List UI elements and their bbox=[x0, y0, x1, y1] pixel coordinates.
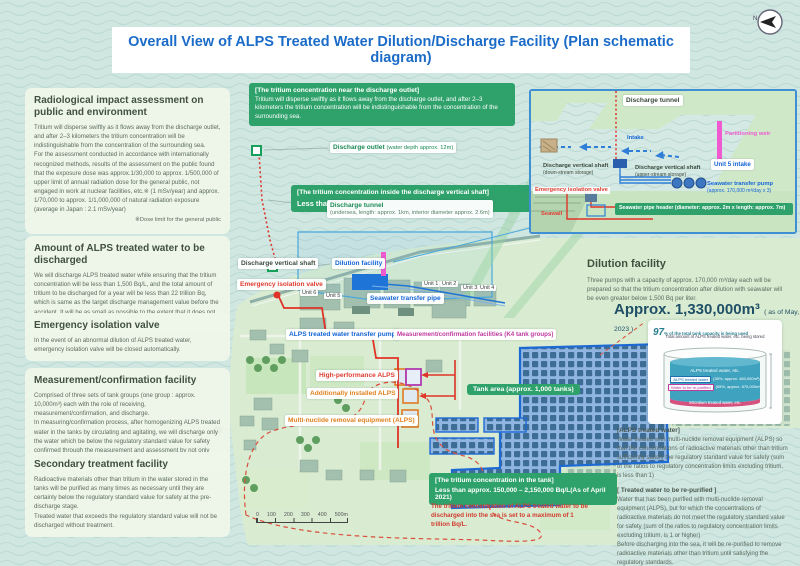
inset-label-discharge-tunnel: Discharge tunnel bbox=[623, 95, 683, 106]
tank-storage-graphic: 97% of the total tank capacity is being … bbox=[648, 320, 782, 424]
scale-tick: 400 bbox=[318, 512, 327, 518]
label-unit-3: Unit 3 bbox=[461, 285, 479, 291]
north-compass-icon: N bbox=[746, 5, 786, 39]
inset-label-unit5-intake: Unit 5 intake bbox=[711, 159, 754, 170]
label-unit-4: Unit 4 bbox=[478, 285, 496, 291]
inset-label-emergency-isolation-valve: Emergency isolation valve bbox=[533, 187, 610, 194]
panel-heading: Measurement/confirmation facility bbox=[34, 375, 221, 387]
label-discharge-tunnel: Discharge tunnel (undersea, length: appr… bbox=[327, 200, 493, 218]
panel-body: Radioactive materials other than tritium… bbox=[34, 475, 221, 530]
inset-label-seawall: Seawall bbox=[541, 211, 562, 218]
tank-subtitle: Total amount of ALPS treated water, etc.… bbox=[656, 334, 774, 339]
label-tank-area: Tank area (approx. 1,000 tanks) bbox=[467, 384, 580, 395]
dose-limit-note: ※Dose limit for the general public bbox=[34, 217, 221, 223]
scale-tick: 0 bbox=[256, 512, 259, 518]
panel-heading: Amount of ALPS treated water to be disch… bbox=[34, 243, 221, 267]
label-emergency-isolation-valve: Emergency isolation valve bbox=[237, 279, 326, 290]
definition-body: Water treated with multi-nuclide removal… bbox=[617, 436, 789, 481]
label-name: Discharge outlet bbox=[333, 144, 385, 151]
label-name: Discharge tunnel bbox=[330, 202, 384, 209]
dilution-facility-body: Three pumps with a capacity of approx. 1… bbox=[587, 276, 789, 303]
tank-inner-title: ALPS treated water, etc. bbox=[648, 368, 782, 373]
label-unit-2: Unit 2 bbox=[440, 281, 458, 287]
panel-secondary-treatment: Secondary treatment facility Radioactive… bbox=[25, 452, 230, 537]
label-name: Discharge vertical shaft bbox=[635, 165, 700, 171]
label-additionally-installed-alps: Additionally installed ALPS bbox=[307, 388, 398, 399]
label-detail: (approx. 170,000 m³/day x 3) bbox=[707, 188, 773, 194]
tank-band-label: Strontium treated water, etc. bbox=[648, 400, 782, 405]
label-detail: (undersea, length: approx. 1km, interior… bbox=[330, 210, 490, 217]
label-high-performance-alps: High-performance ALPS bbox=[316, 370, 398, 381]
page-title: Overall View of ALPS Treated Water Dilut… bbox=[112, 27, 690, 73]
callout-header: [The tritium concentration inside the di… bbox=[297, 189, 553, 198]
scale-tick: 500m bbox=[335, 512, 348, 518]
tank-row-alps-treated: ALPS treated water (35%, approx. 460,000… bbox=[648, 376, 782, 383]
row-value: (35%, approx. 460,000m³) bbox=[713, 376, 759, 383]
alps-facility-diagram: N Overall View of ALPS Treated Water Dil… bbox=[0, 0, 800, 566]
label-detail: (water depth approx. 12m) bbox=[387, 145, 454, 151]
scale-tick-labels: 0 100 200 300 400 500m bbox=[256, 512, 348, 518]
scale-tick: 200 bbox=[284, 512, 293, 518]
definition-header: [ Treated water to be re-purified ] bbox=[617, 487, 789, 494]
label-seawater-transfer-pipe: Seawater transfer pipe bbox=[367, 293, 444, 304]
label-unit-5: Unit 5 bbox=[324, 293, 342, 299]
callout-body: Tritium will disperse swiftly as it flow… bbox=[255, 96, 509, 122]
inset-label-shaft-downstream: Discharge vertical shaft (down-stream st… bbox=[543, 163, 608, 176]
callout-in-tank: [The tritium concentration in the tank] … bbox=[429, 473, 617, 505]
label-measurement-confirmation-facilities: Measurement/confirmation facilities (K4 … bbox=[394, 329, 556, 340]
inset-label-shaft-upstream: Discharge vertical shaft (upper-stream s… bbox=[635, 165, 700, 178]
inset-label-partitioning-weir: Partitioning weir bbox=[725, 131, 770, 138]
label-name: Seawater transfer pump bbox=[707, 181, 773, 187]
panel-heading: Emergency isolation valve bbox=[34, 320, 221, 332]
map-scale-bar: 0 100 200 300 400 500m bbox=[256, 512, 348, 523]
panel-heading: Secondary treatment facility bbox=[34, 459, 221, 471]
panel-radiological-impact: Radiological impact assessment on public… bbox=[25, 88, 230, 234]
definition-header: [ALPS treated water] bbox=[617, 427, 789, 434]
definition-body: Water that has been purified with multi-… bbox=[617, 496, 789, 566]
panel-body: In the event of an abnormal dilution of … bbox=[34, 336, 221, 354]
inset-label-pipe-header: Seawater pipe header (diameter: approx. … bbox=[619, 205, 791, 211]
panel-body: Tritium will disperse swiftly as it flow… bbox=[34, 123, 221, 214]
callout-header: [The tritium concentration in the tank] bbox=[435, 477, 611, 486]
row-label: Water to be re-purified bbox=[668, 384, 714, 391]
scale-tick: 300 bbox=[301, 512, 310, 518]
panel-emergency-valve: Emergency isolation valve In the event o… bbox=[25, 313, 230, 361]
label-detail: (down-stream storage) bbox=[543, 170, 608, 176]
inset-detail-view: Discharge tunnel Intake Partitioning wei… bbox=[529, 89, 797, 234]
storage-value: Approx. 1,330,000m³ bbox=[614, 301, 760, 318]
label-discharge-outlet: Discharge outlet (water depth approx. 12… bbox=[330, 142, 456, 153]
label-multi-nuclide-removal: Multi-nuclide removal equipment (ALPS) bbox=[285, 415, 418, 426]
callout-near-outlet: [The tritium concentration near the disc… bbox=[249, 83, 515, 126]
label-dilution-facility: Dilution facility bbox=[332, 258, 385, 269]
label-detail: (upper-stream storage) bbox=[635, 172, 700, 178]
svg-text:N: N bbox=[753, 16, 757, 22]
row-value: (65%, approx. 870,000m³) bbox=[716, 384, 762, 391]
inset-label-seawater-pump: Seawater transfer pump (approx. 170,000 … bbox=[707, 181, 773, 194]
tank-row-re-purified: Water to be re-purified (65%, approx. 87… bbox=[648, 384, 782, 391]
label-discharge-vertical-shaft: Discharge vertical shaft bbox=[238, 258, 318, 269]
callout-value: Less than approx. 150,000 – 2,150,000 Bq… bbox=[435, 487, 611, 501]
label-unit-1: Unit 1 bbox=[422, 281, 440, 287]
water-definitions: [ALPS treated water] Water treated with … bbox=[617, 427, 789, 566]
scale-tick: 100 bbox=[267, 512, 276, 518]
panel-heading: Radiological impact assessment on public… bbox=[34, 95, 221, 119]
inset-label-intake: Intake bbox=[627, 135, 644, 142]
scale-bar-line bbox=[256, 518, 348, 523]
label-name: Discharge vertical shaft bbox=[543, 163, 608, 169]
row-label: ALPS treated water bbox=[670, 376, 711, 383]
tank-red-note: The tritium concentration of ALPS treate… bbox=[431, 503, 591, 530]
dilution-facility-heading: Dilution facility bbox=[587, 258, 666, 270]
callout-header: [The tritium concentration near the disc… bbox=[255, 87, 509, 96]
label-unit-6: Unit 6 bbox=[300, 290, 318, 296]
label-alps-transfer-pump: ALPS treated water transfer pump bbox=[286, 329, 399, 340]
